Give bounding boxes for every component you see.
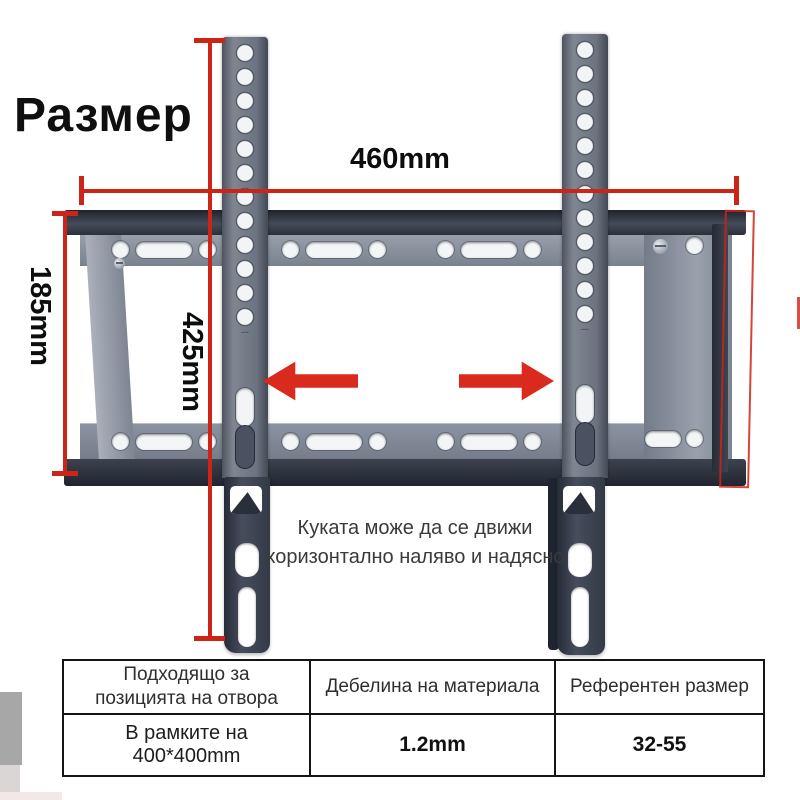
mounting-hole: [282, 433, 299, 450]
mounting-hole: [524, 433, 541, 450]
height-dimension-label-wrap: 425mm: [172, 302, 212, 422]
mounting-slot: [306, 242, 362, 258]
spec-header-hole-position: Подходящо за позицията на отвора: [64, 661, 309, 713]
dimension-line-width: [82, 189, 738, 193]
height-dimension-label: 425mm: [176, 312, 209, 412]
adjustment-slot: [236, 426, 254, 468]
dimension-tick: [52, 211, 78, 216]
width-dimension-label: 460mm: [338, 143, 462, 176]
mounting-slot: [645, 431, 681, 447]
right-arrow-icon: [459, 360, 554, 402]
mounting-slot: [306, 434, 362, 450]
spec-header-material-thickness: Дебелина на материала: [309, 661, 554, 713]
wall-plate-top-edge: [64, 210, 746, 235]
mounting-slot: [136, 242, 192, 258]
product-dimension-diagram: Размер: [0, 0, 800, 800]
hole-column: [224, 41, 266, 333]
adjustment-slot: [576, 423, 594, 465]
adjustment-slot: [576, 385, 594, 423]
spec-table: Подходящо за позицията на отвора Дебелин…: [62, 659, 765, 777]
hook-slot: [571, 587, 589, 647]
mounting-hole: [437, 433, 454, 450]
tv-bracket-left-arm: [222, 37, 268, 478]
mounting-hole: [524, 241, 541, 258]
photo-edge-artifact: [0, 792, 62, 800]
screw-icon: [653, 239, 668, 254]
hook-notch: [563, 486, 595, 514]
mounting-hole: [369, 241, 386, 258]
mounting-hole: [686, 430, 703, 447]
mounting-hole: [112, 241, 129, 258]
depth-dimension-label-wrap: 185mm: [20, 256, 60, 376]
dimension-tick: [194, 636, 225, 641]
mounting-hole: [437, 241, 454, 258]
mounting-hole: [282, 241, 299, 258]
dimension-line-depth: [63, 213, 67, 475]
mounting-hole: [686, 237, 703, 254]
dimension-tick: [79, 176, 84, 205]
depth-dimension-label: 185mm: [24, 266, 57, 366]
hook-slot: [238, 587, 256, 647]
mounting-hole: [369, 433, 386, 450]
mounting-hole: [112, 433, 129, 450]
spec-value-hole-position: В рамките на 400*400mm: [64, 713, 309, 775]
note-line-1: Куката може да се движи: [255, 514, 575, 543]
note-line-2: хоризонтално наляво и надясно: [255, 543, 575, 572]
left-arrow-icon: [263, 360, 358, 402]
wall-plate-bottom-edge: [64, 459, 746, 486]
screw-icon: [114, 258, 125, 269]
hook-notch: [230, 486, 262, 514]
spec-value-reference-size: 32-55: [554, 713, 763, 775]
mounting-slot: [461, 434, 517, 450]
adjustment-slot: [236, 388, 254, 426]
mounting-slot: [461, 242, 517, 258]
dimension-tick: [734, 176, 739, 205]
photo-edge-artifact: [0, 692, 22, 765]
highlight-rectangle: [719, 210, 755, 489]
page-title: Размер: [14, 88, 193, 143]
dimension-tick: [194, 38, 225, 43]
spec-header-reference-size: Референтен размер: [554, 661, 763, 713]
tv-bracket-right-arm: [562, 34, 608, 478]
hook-movement-note: Куката може да се движи хоризонтално нал…: [255, 514, 575, 572]
dimension-tick: [52, 471, 78, 476]
mounting-slot: [136, 434, 192, 450]
spec-value-material-thickness: 1.2mm: [309, 713, 554, 775]
hole-column: [564, 38, 606, 330]
